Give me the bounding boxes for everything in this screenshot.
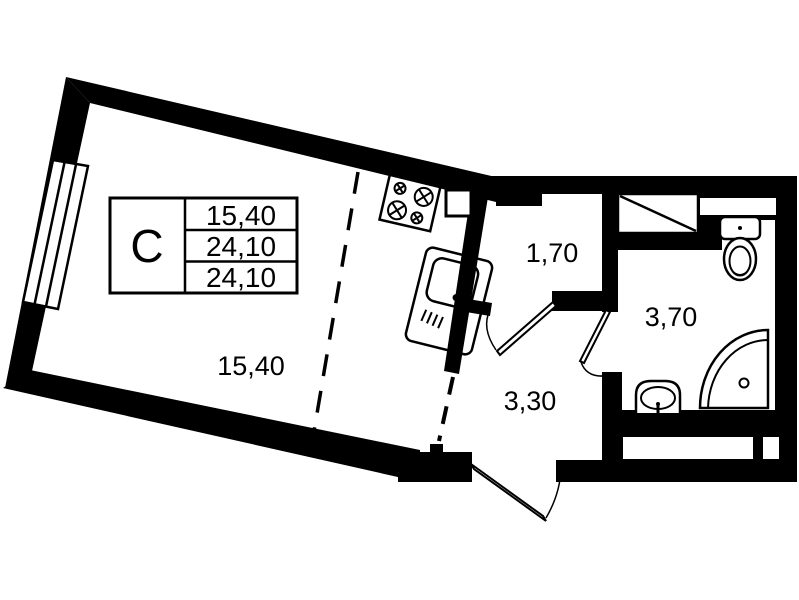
wall-bath-upper [602, 192, 618, 312]
main-room-label: 15,40 [217, 351, 285, 381]
hallway-label: 3,30 [504, 386, 557, 416]
opening-dashed-line [439, 377, 453, 441]
legend-row-0: 15,40 [206, 200, 276, 231]
entrance-door-icon [471, 464, 561, 521]
duct-shelf [700, 198, 776, 215]
window-icon [23, 160, 88, 309]
kitchen-niche [446, 190, 471, 216]
floor-plan: С 15,40 24,10 24,10 15,40 1,70 3,70 3,30 [0, 0, 799, 600]
wall-entrance-jamb [556, 460, 606, 482]
legend-row-2: 24,10 [206, 262, 276, 293]
bathroom-label: 3,70 [645, 302, 698, 332]
block-slot-large [623, 437, 753, 459]
wall-pillar [496, 176, 542, 206]
upper-hall-door-icon [487, 302, 556, 355]
floor-plan-drawing: С 15,40 24,10 24,10 15,40 1,70 3,70 3,30 [0, 0, 799, 600]
wall-dash-stub [430, 444, 443, 462]
vent-shaft-icon [618, 194, 698, 233]
toilet-icon [720, 217, 760, 280]
shower-icon [700, 330, 768, 408]
legend-type-letter: С [130, 220, 163, 272]
bathroom-door-icon [580, 310, 610, 376]
stove-icon [379, 174, 440, 231]
wall-bottom-tilted [3, 370, 420, 482]
legend-row-1: 24,10 [206, 231, 276, 262]
dashed-lines [312, 172, 453, 443]
wall-main-right [444, 193, 488, 374]
kitchen-zone-dashed-line [312, 172, 358, 443]
upper-hall-label: 1,70 [526, 238, 579, 268]
block-slot-small [763, 437, 779, 459]
legend-table: С 15,40 24,10 24,10 [110, 198, 297, 293]
